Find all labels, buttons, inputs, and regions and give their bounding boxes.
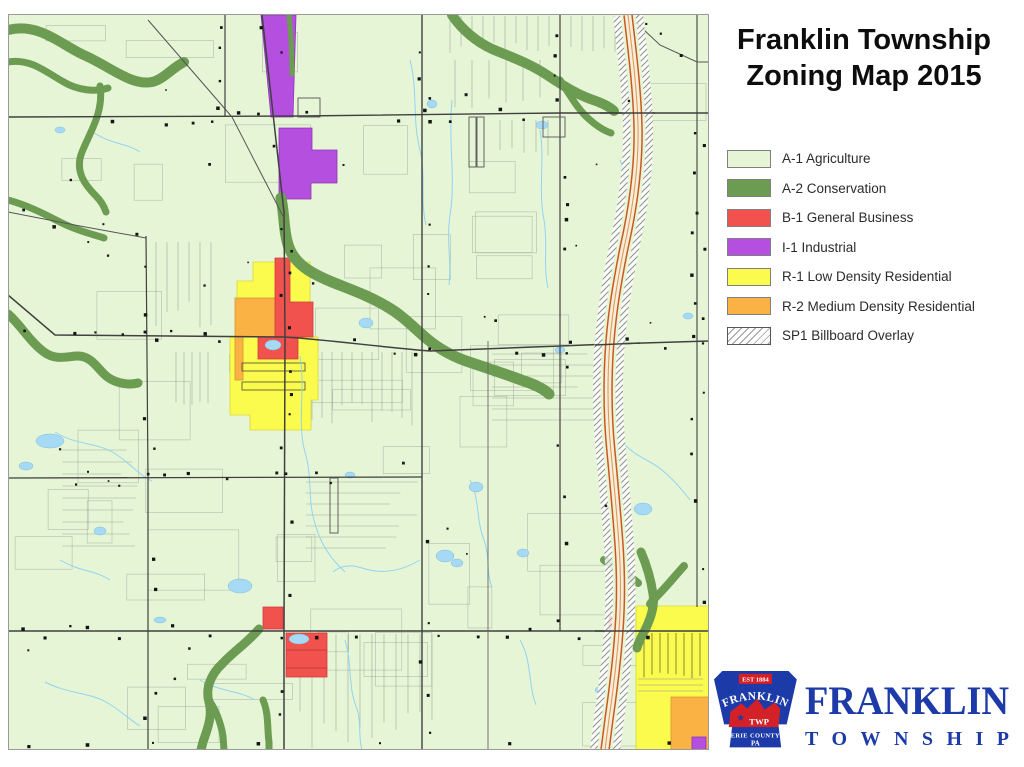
legend-label-a2: A-2 Conservation (782, 181, 886, 196)
legend-swatch-sp1 (727, 327, 771, 345)
township-logo: EST 1884 FRANKLIN ★ TWP ERIE COUNTY PA F… (710, 649, 1020, 767)
legend-item-r1: R-1 Low Density Residential (727, 262, 1019, 292)
legend-swatch-i1 (727, 238, 771, 256)
legend-item-r2: R-2 Medium Density Residential (727, 292, 1019, 322)
wordmark-franklin: FRANKLIN (805, 678, 1009, 723)
legend-label-r1: R-1 Low Density Residential (782, 269, 952, 284)
legend-swatch-a1 (727, 150, 771, 168)
legend-label-sp1: SP1 Billboard Overlay (782, 328, 914, 343)
legend: A-1 Agriculture A-2 Conservation B-1 Gen… (727, 144, 1019, 351)
legend-label-r2: R-2 Medium Density Residential (782, 299, 975, 314)
legend-item-sp1: SP1 Billboard Overlay (727, 321, 1019, 351)
state-text: PA (751, 741, 760, 748)
star-icon: ★ (736, 713, 745, 724)
legend-item-a1: A-1 Agriculture (727, 144, 1019, 174)
map-title: Franklin Township Zoning Map 2015 (711, 22, 1017, 94)
est-text: EST 1884 (742, 677, 769, 684)
legend-label-a1: A-1 Agriculture (782, 151, 871, 166)
legend-swatch-r1 (727, 268, 771, 286)
legend-item-b1: B-1 General Business (727, 203, 1019, 233)
keystone-emblem: EST 1884 FRANKLIN ★ TWP ERIE COUNTY PA (714, 671, 797, 748)
legend-swatch-r2 (727, 297, 771, 315)
legend-swatch-b1 (727, 209, 771, 227)
zoning-map (8, 14, 709, 750)
legend-swatch-a2 (727, 179, 771, 197)
map-title-line1: Franklin Township (711, 22, 1017, 58)
legend-item-i1: I-1 Industrial (727, 233, 1019, 263)
page: Franklin Township Zoning Map 2015 A-1 Ag… (0, 0, 1024, 767)
legend-label-b1: B-1 General Business (782, 210, 913, 225)
county-text: ERIE COUNTY (731, 732, 780, 739)
legend-item-a2: A-2 Conservation (727, 174, 1019, 204)
legend-label-i1: I-1 Industrial (782, 240, 856, 255)
wordmark-township: TOWNSHIP (805, 728, 1009, 750)
twp-text: TWP (749, 716, 770, 726)
map-title-line2: Zoning Map 2015 (711, 58, 1017, 94)
